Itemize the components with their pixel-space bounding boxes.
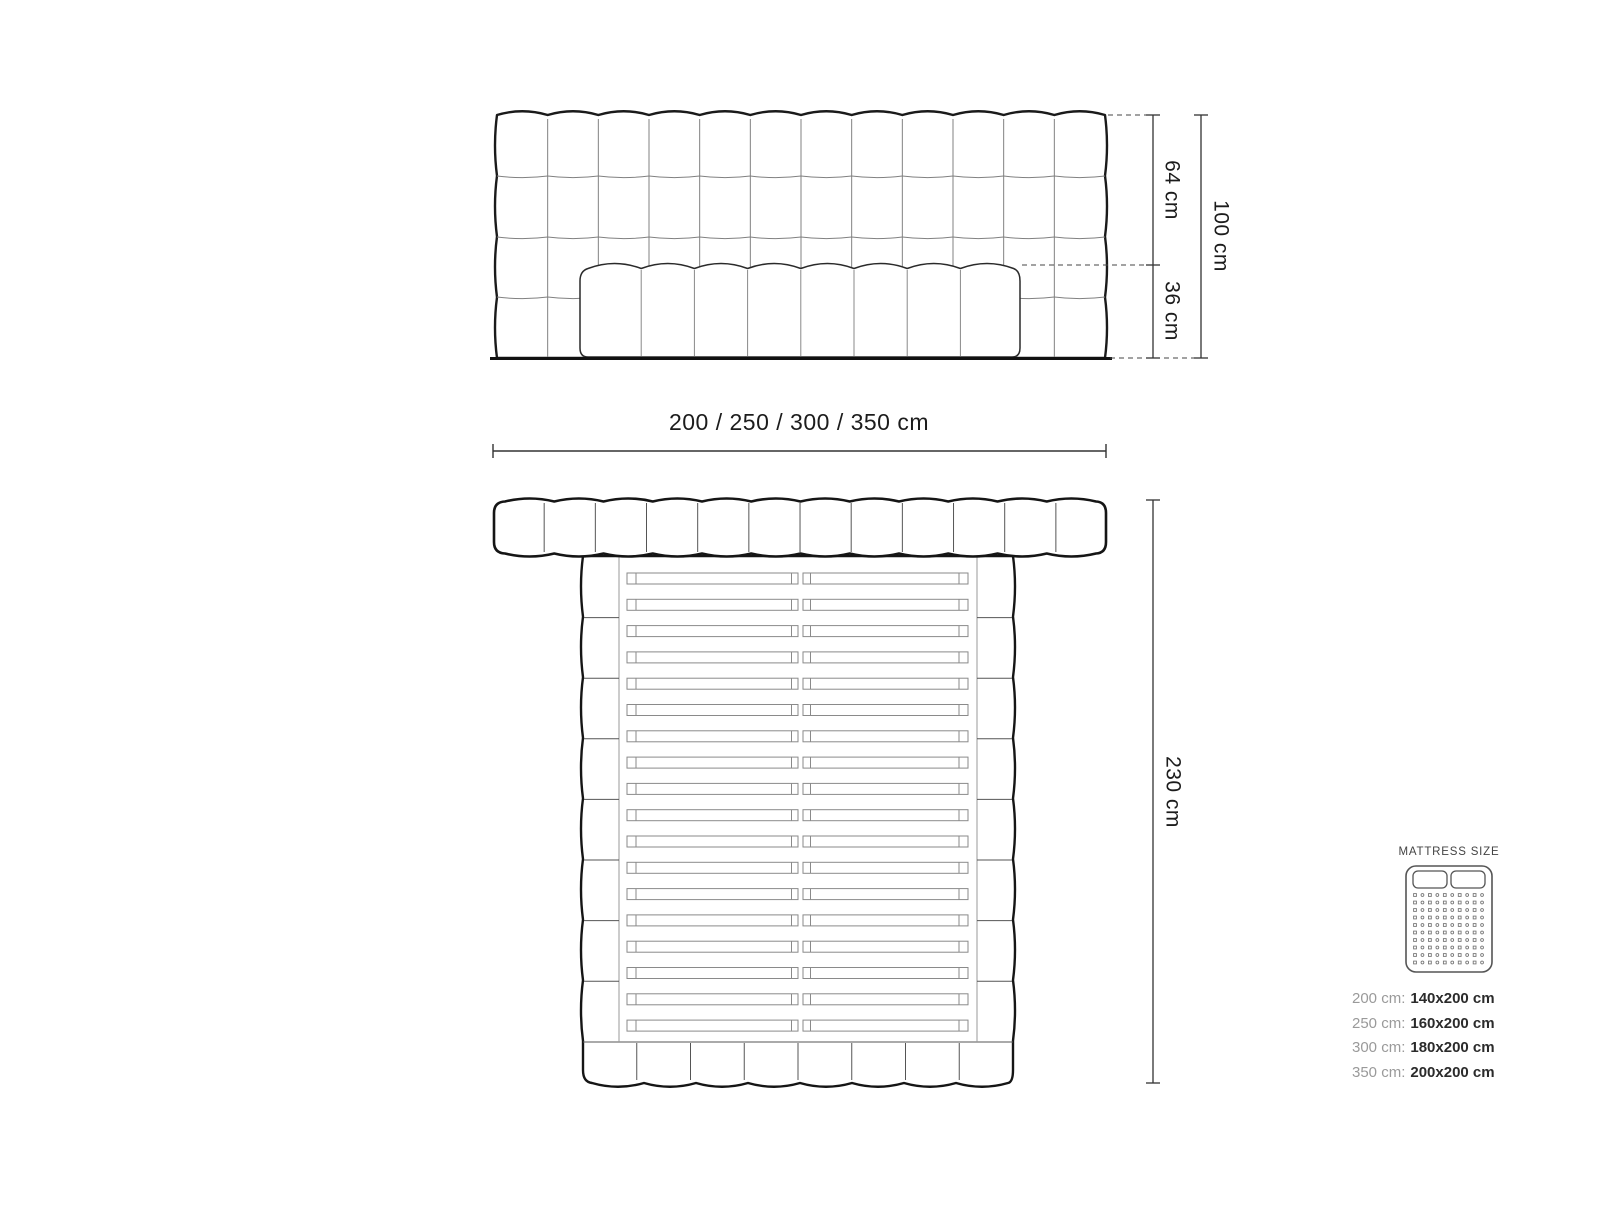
total-height-dimension-line xyxy=(1194,115,1208,358)
size-label: 350 cm: xyxy=(1352,1064,1405,1081)
width-dimension-line xyxy=(493,444,1106,458)
headboard-top-view xyxy=(494,499,1106,557)
mattress-size-legend: MATTRESS SIZE 200 cm:140x200 cm 250 cm:1… xyxy=(1352,846,1492,1085)
upper-height-label: 64 cm xyxy=(1161,160,1184,220)
height-dimension-line xyxy=(1146,115,1160,358)
size-value: 200x200 cm xyxy=(1410,1064,1494,1081)
size-label: 250 cm: xyxy=(1352,1015,1405,1032)
length-label: 230 cm xyxy=(1162,756,1185,828)
total-height-label: 100 cm xyxy=(1210,200,1233,272)
legend-row: 200 cm:140x200 cm xyxy=(1352,987,1492,1012)
legend-title: MATTRESS SIZE xyxy=(1394,846,1504,858)
size-value: 140x200 cm xyxy=(1410,990,1494,1007)
size-value: 160x200 cm xyxy=(1410,1015,1494,1032)
size-label: 200 cm: xyxy=(1352,990,1405,1007)
size-label: 300 cm: xyxy=(1352,1039,1405,1056)
mattress-icon xyxy=(1405,865,1493,973)
legend-row: 300 cm:180x200 cm xyxy=(1352,1036,1492,1061)
width-options-label: 200 / 250 / 300 / 350 cm xyxy=(669,409,929,435)
lower-height-label: 36 cm xyxy=(1161,281,1184,341)
legend-row: 250 cm:160x200 cm xyxy=(1352,1012,1492,1037)
legend-row: 350 cm:200x200 cm xyxy=(1352,1061,1492,1086)
mattress-front-view xyxy=(580,264,1020,358)
legend-rows: 200 cm:140x200 cm 250 cm:160x200 cm 300 … xyxy=(1352,987,1492,1085)
length-dimension-line xyxy=(1146,500,1160,1083)
bed-dimension-diagram: 64 cm 36 cm 100 cm 200 / 250 / 300 / 350… xyxy=(0,0,1600,1200)
size-value: 180x200 cm xyxy=(1410,1039,1494,1056)
